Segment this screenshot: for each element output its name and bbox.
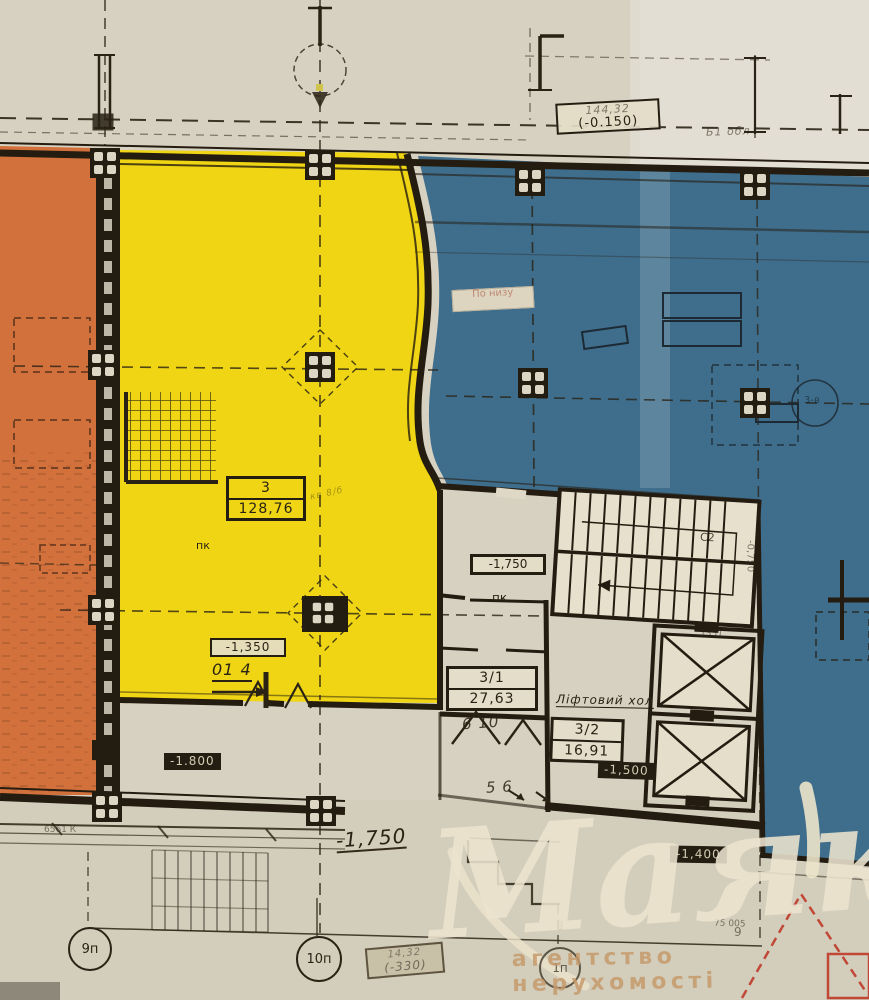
lift-hall-title: Ліфтовий хол xyxy=(556,693,654,708)
room-3-area: 128,76 xyxy=(229,498,303,519)
dim-1351: 1351 xyxy=(700,629,723,640)
grate-hatch xyxy=(126,392,218,482)
handwritten-01-4: 01 4 xyxy=(212,662,252,682)
pk-note-corridor: пк xyxy=(492,592,507,605)
pk-note-left: пк xyxy=(196,540,210,552)
dim-6561: 6561 К xyxy=(44,826,76,835)
room-31-label: 3/1 27,63 xyxy=(446,666,538,711)
room-31-number: 3/1 xyxy=(449,669,535,688)
level-minus-1750-hand: -1,750 xyxy=(335,826,407,854)
watermark-tagline: агентство нерухомості xyxy=(512,941,869,997)
level-minus-1750-box: -1,750 xyxy=(470,554,546,575)
top-elevation-label: 144,32 (-0.150) xyxy=(555,98,660,135)
room-32-number: 3/2 xyxy=(553,720,622,741)
room-32-label: 3/2 16,91 xyxy=(549,717,625,765)
stairs-c2: С2 xyxy=(700,532,715,544)
grid-bubble-10p: 10п xyxy=(296,936,342,982)
stairs-level-0750: -0,750 xyxy=(744,540,755,572)
level-minus-1800: -1.800 xyxy=(164,753,221,770)
stairs xyxy=(552,489,759,626)
room-3-number: 3 xyxy=(229,479,303,498)
room-32-area: 16,91 xyxy=(552,739,621,762)
handwritten-6-10: 6 10 xyxy=(461,715,499,733)
level-minus-1500: -1,500 xyxy=(598,761,655,780)
blue-circle-note: 3-в xyxy=(804,396,820,407)
level-minus-1350: -1,350 xyxy=(210,638,286,657)
room-3-label: 3 128,76 xyxy=(226,476,306,521)
top-right-note: Б1 обл xyxy=(706,125,751,138)
sticker-note: По низу xyxy=(451,286,534,312)
grid-bubble-9p: 9п xyxy=(68,927,112,971)
floor-plan-photo: 144,32 (-0.150) Б1 обл 3 128,76 кв 8/б -… xyxy=(0,0,869,1000)
room-31-area: 27,63 xyxy=(449,688,535,709)
